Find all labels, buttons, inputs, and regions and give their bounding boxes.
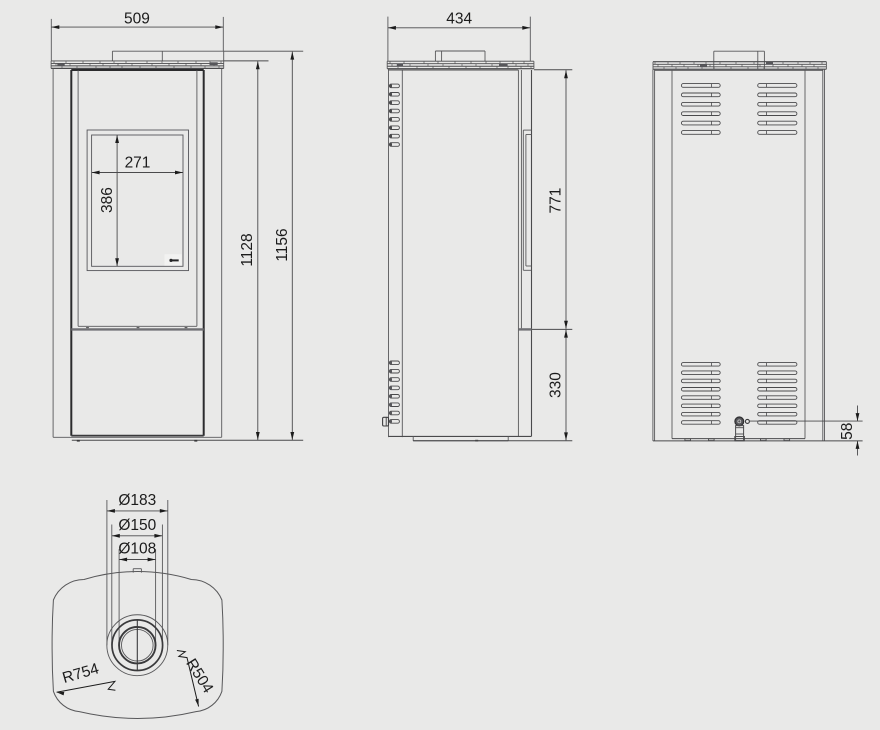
svg-text:509: 509 <box>124 10 150 27</box>
svg-text:771: 771 <box>547 188 564 214</box>
svg-text:434: 434 <box>446 10 472 27</box>
svg-text:330: 330 <box>547 372 564 398</box>
svg-text:58: 58 <box>839 423 856 440</box>
svg-text:386: 386 <box>99 187 116 213</box>
svg-text:Ø183: Ø183 <box>118 492 156 509</box>
svg-text:Ø150: Ø150 <box>118 517 156 534</box>
svg-text:271: 271 <box>125 154 151 171</box>
svg-text:Ø108: Ø108 <box>118 541 156 558</box>
svg-text:1156: 1156 <box>274 228 291 261</box>
svg-text:1128: 1128 <box>239 233 256 266</box>
svg-text:R754: R754 <box>61 660 102 687</box>
svg-text:R504: R504 <box>182 656 216 697</box>
